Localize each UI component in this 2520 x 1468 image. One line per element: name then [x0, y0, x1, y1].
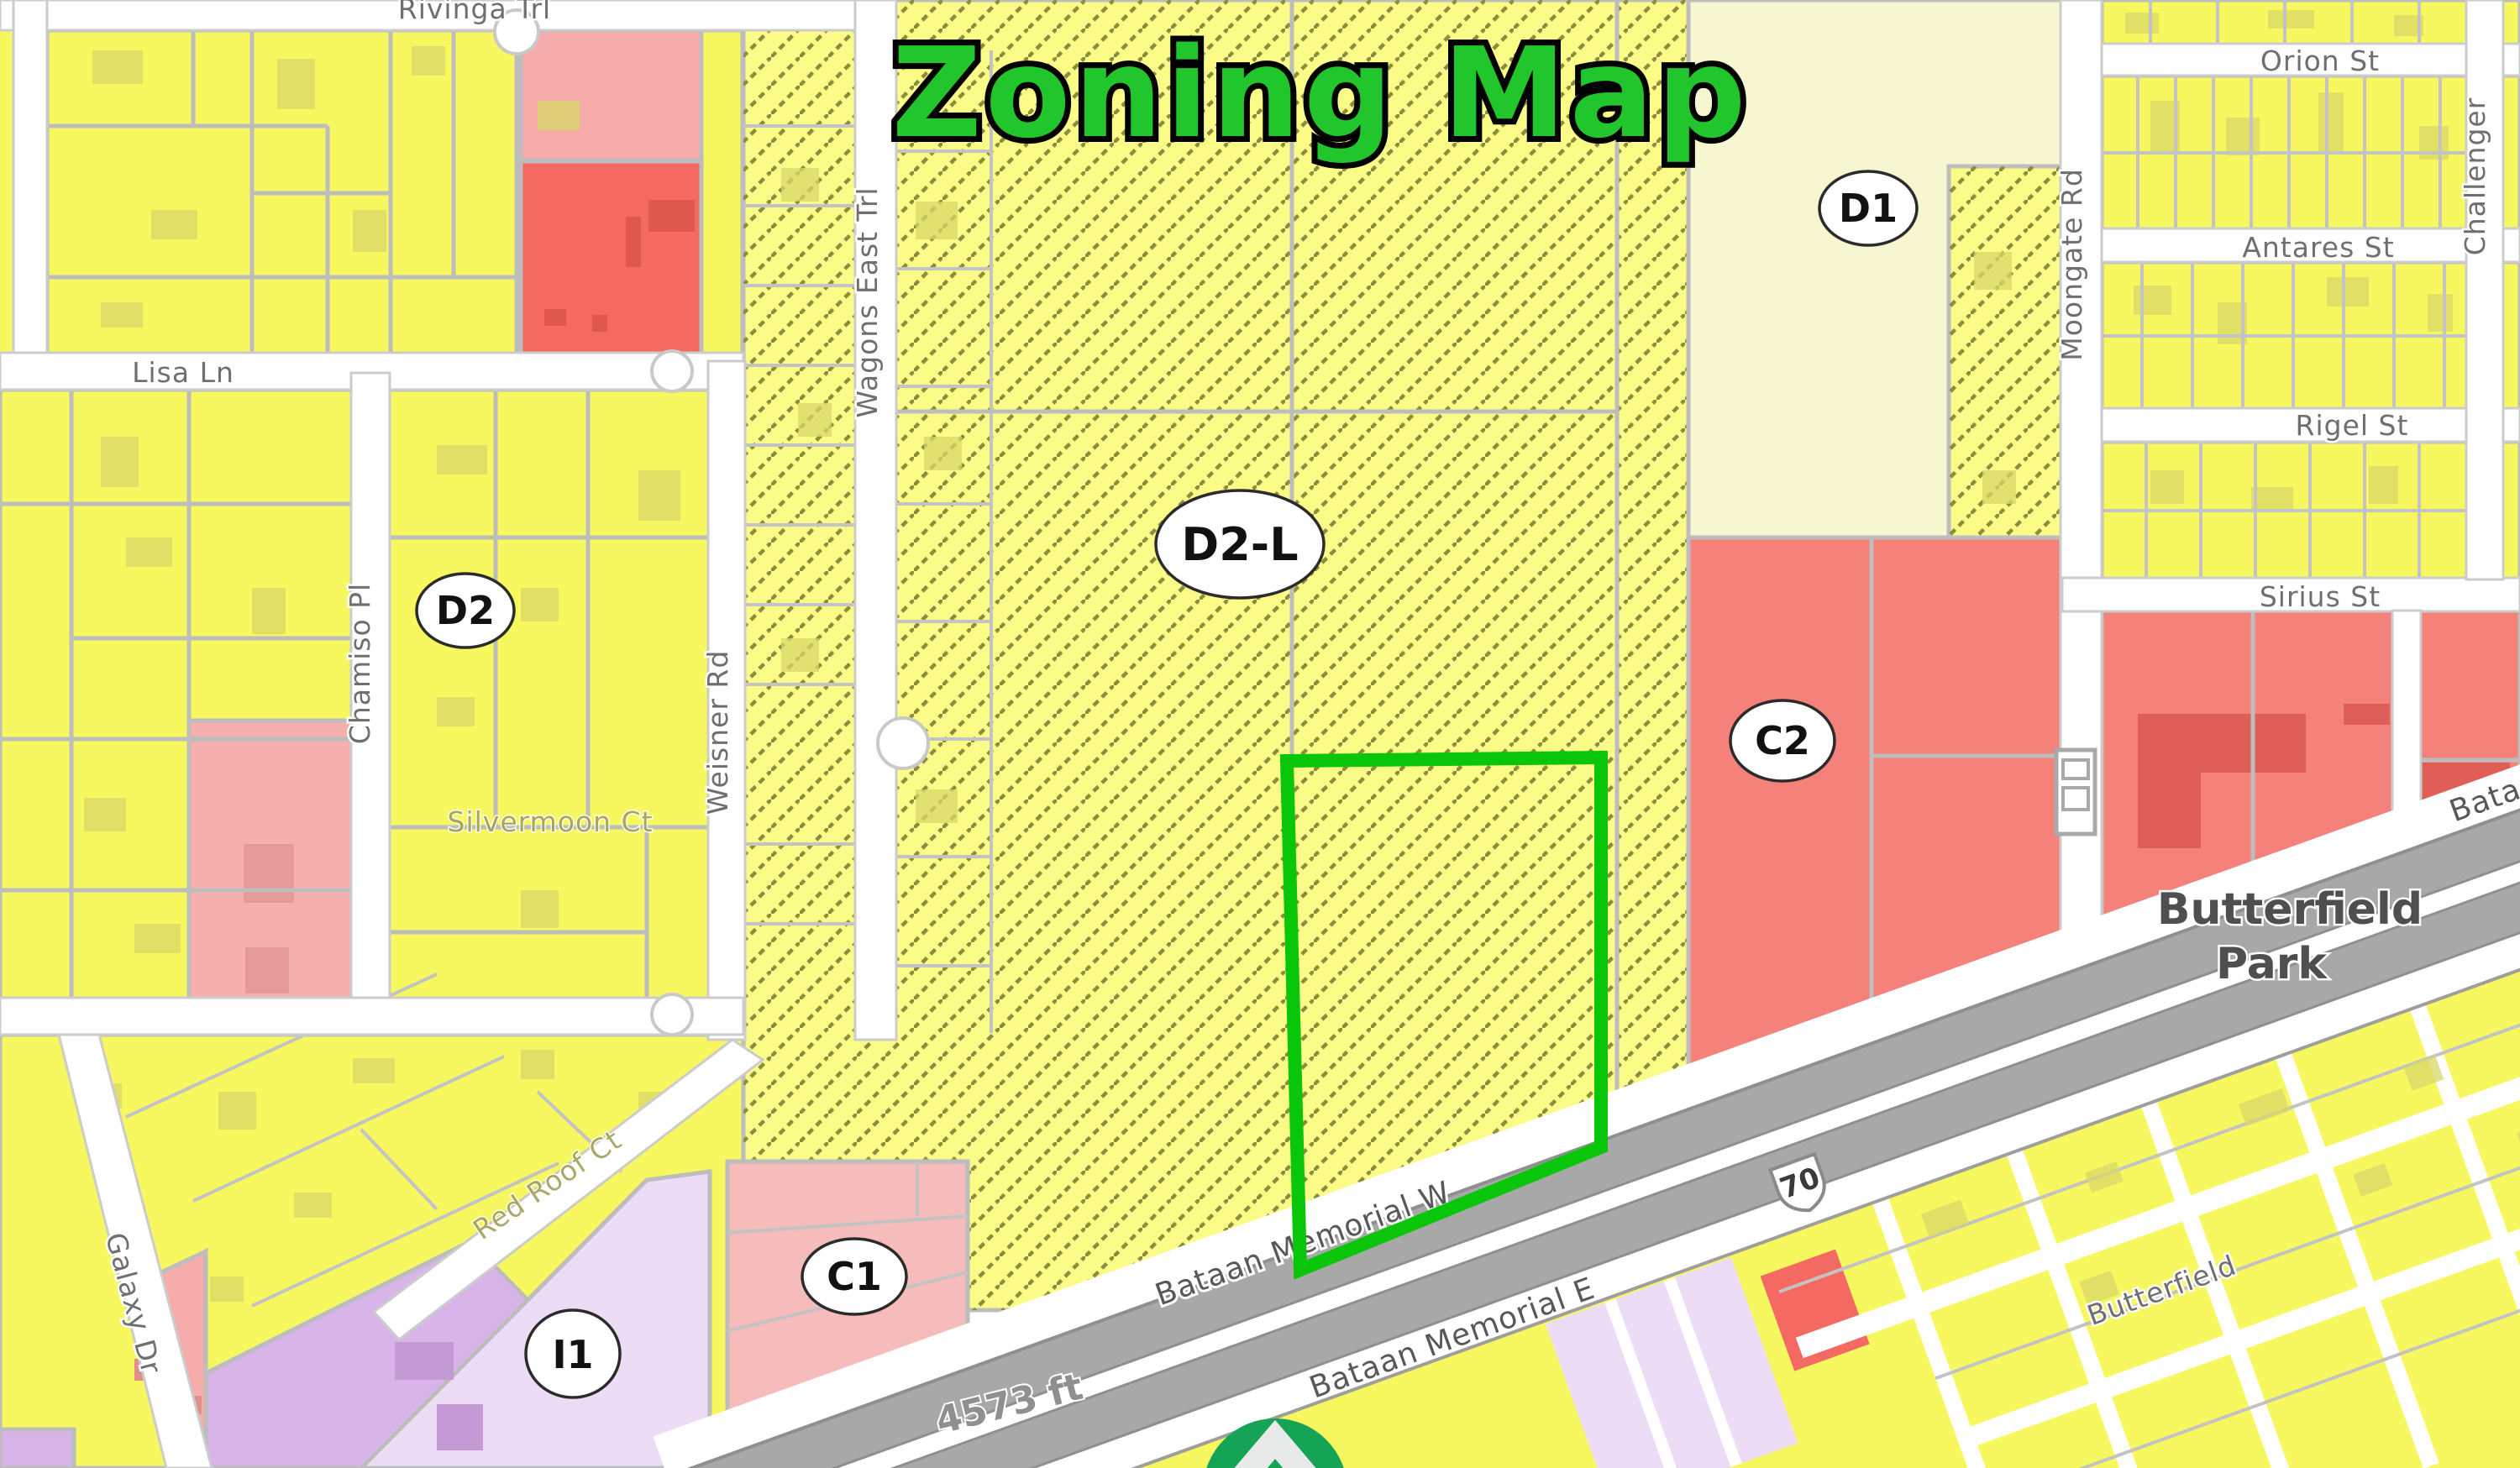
street-label-orion-st: Orion St	[2260, 45, 2380, 77]
street-label-wagons-east-trl: Wagons East Trl	[851, 186, 884, 417]
street-label-moongate-rd: Moongate Rd	[2055, 168, 2088, 361]
cul-de-sac	[652, 351, 692, 391]
street-label-rigel-st: Rigel St	[2296, 409, 2409, 442]
street-label-challenger: Challenger	[2459, 97, 2491, 256]
zone-label-i1: I1	[552, 1332, 593, 1377]
rest-area-icon	[2056, 750, 2095, 834]
zone-label-c1: C1	[827, 1254, 882, 1299]
street-label-rivinga-trl: Rivinga Trl	[398, 0, 551, 25]
street-label-lisa-ln: Lisa Ln	[132, 356, 234, 389]
zone-label-d2: D2	[436, 588, 495, 633]
cul-de-sac	[878, 718, 928, 768]
road-challenger	[2466, 0, 2503, 579]
page-title: Zoning Map	[891, 21, 1749, 165]
zoning-map-canvas[interactable]: 70 Bataan Memorial W Bataan Memorial E B…	[0, 0, 2520, 1468]
street-label-chamiso-pl: Chamiso Pl	[344, 583, 376, 744]
place-label-butterfield: Butterfield	[2157, 884, 2423, 935]
cul-de-sac	[652, 994, 692, 1035]
place-label-park: Park	[2216, 939, 2328, 989]
road-wagons-east-trl	[855, 0, 896, 1040]
zone-pink-parcel-top	[521, 30, 701, 160]
road-moongate-rd	[2061, 0, 2102, 1020]
zone-label-c2: C2	[1755, 718, 1810, 763]
street-label-sirius-st: Sirius St	[2260, 580, 2381, 613]
zone-label-d1: D1	[1839, 186, 1898, 231]
zone-label-d2l: D2-L	[1181, 518, 1298, 571]
street-label-weisner-rd: Weisner Rd	[701, 650, 734, 815]
street-label-silvermoon-ct: Silvermoon Ct	[447, 805, 653, 838]
street-label-antares-st: Antares St	[2242, 231, 2394, 264]
